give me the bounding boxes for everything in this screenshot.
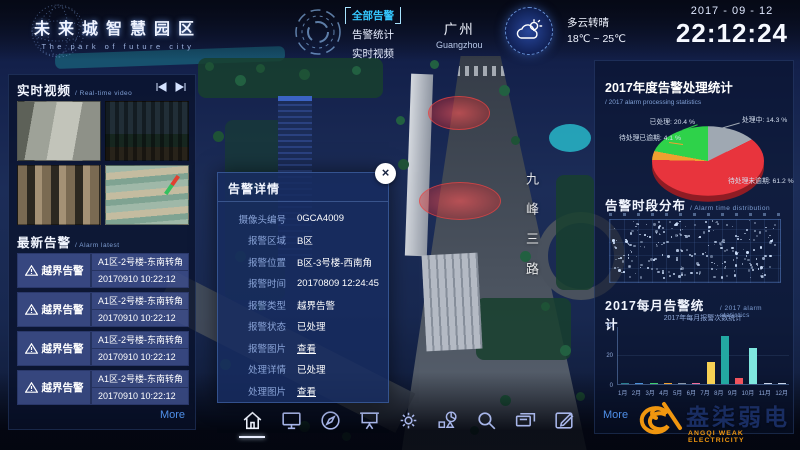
warning-icon xyxy=(25,304,38,315)
app-title-block: 未来城智慧园区 The park of future city xyxy=(34,15,202,51)
angqi-logo-icon xyxy=(630,398,684,446)
edit-pencil-icon[interactable] xyxy=(550,408,578,444)
video-thumbnail-3[interactable] xyxy=(17,165,101,225)
modal-field-type: 报警类型越界告警 xyxy=(218,294,388,316)
alarm-location: A1区-2号楼-东南转角 xyxy=(92,254,188,271)
field-value: 已处理 xyxy=(297,362,326,376)
scatter-section-title: 告警时段分布 xyxy=(605,195,686,214)
city-block: 广州 Guangzhou xyxy=(436,18,483,50)
alarm-section-header: 最新告警 / Alarm latest xyxy=(17,232,120,251)
modal-field-time: 报警时间20170809 12:24:45 xyxy=(218,273,388,295)
field-value: 已处理 xyxy=(297,319,326,333)
warning-icon xyxy=(25,343,38,354)
bar xyxy=(692,383,700,385)
brand-name-cn: 盎柒弱电 xyxy=(686,398,790,432)
alarm-type-cell: 越界告警 xyxy=(18,293,92,326)
modal-field-area: 报警区域B区 xyxy=(218,230,388,252)
alarm-detail-modal: 告警详情 × 摄像头编号0GCA4009 报警区域B区 报警位置B区-3号楼-西… xyxy=(217,172,389,403)
menu-item-all-alarms[interactable]: 全部告警 xyxy=(345,7,401,24)
header: 未来城智慧园区 The park of future city 全部告警 告警统… xyxy=(0,0,800,62)
field-value: 20170809 12:24:45 xyxy=(297,278,379,289)
monthly-bar-yticks: 40200 xyxy=(595,323,613,389)
map-decoration xyxy=(556,175,594,290)
field-label: 处理详情 xyxy=(218,362,286,376)
field-label: 报警区域 xyxy=(218,233,286,247)
video-section-title: 实时视频 xyxy=(17,80,71,99)
stats-more-link[interactable]: More xyxy=(603,409,628,421)
video-nav xyxy=(155,82,187,92)
city-name-en: Guangzhou xyxy=(436,40,483,50)
time-text: 22:12:24 xyxy=(676,18,788,49)
pie-label-pending-not-overdue: 待处理未逾期: 61.2 % xyxy=(728,175,794,185)
bar xyxy=(650,383,658,385)
modal-field-camera-id: 摄像头编号0GCA4009 xyxy=(218,208,388,230)
alarm-time: 20170910 10:22:12 xyxy=(92,349,188,365)
alarm-info-cell: A1区-2号楼-东南转角 20170910 10:22:12 xyxy=(92,332,188,365)
pie-section-title: 2017年度告警处理统计 xyxy=(605,77,733,96)
modal-field-handle-image: 处理图片查看 xyxy=(218,380,388,402)
scatter-section-header: 告警时段分布 / Alarm time distribution xyxy=(605,195,770,214)
pie-leader-line xyxy=(722,123,740,129)
modal-field-handle-detail: 处理详情已处理 xyxy=(218,359,388,381)
alarm-type-cell: 越界告警 xyxy=(18,254,92,287)
video-section-header: 实时视频 / Real-time video xyxy=(17,80,132,99)
bar xyxy=(721,336,729,384)
search-icon[interactable] xyxy=(472,408,500,444)
field-value: B区-3号楼-西南角 xyxy=(297,255,372,269)
warning-icon xyxy=(25,265,38,276)
previous-video-icon[interactable] xyxy=(155,82,167,92)
field-label: 报警状态 xyxy=(218,319,286,333)
pie-section-subtitle: / 2017 alarm processing statistics xyxy=(605,99,701,106)
alarm-type-label: 越界告警 xyxy=(42,302,84,317)
presentation-icon[interactable] xyxy=(355,408,383,444)
alarm-location: A1区-2号楼-东南转角 xyxy=(92,293,188,310)
map-alarm-marker[interactable] xyxy=(419,182,501,220)
datetime-block: 2017 - 09 - 12 22:12:24 xyxy=(676,5,788,49)
alarm-section-subtitle: / Alarm latest xyxy=(75,242,120,249)
map-road-label: 九峰三路 xyxy=(522,172,541,292)
bar xyxy=(678,383,686,385)
date-text: 2017 - 09 - 12 xyxy=(676,5,788,17)
dashboard: 九峰三路 未来城智慧园区 The park of future city 全部告… xyxy=(0,0,800,450)
weather-badge xyxy=(505,7,553,55)
close-icon[interactable]: × xyxy=(375,163,396,184)
records-cards-icon[interactable] xyxy=(511,408,539,444)
statistics-shapes-icon[interactable] xyxy=(433,408,461,444)
alarm-location: A1区-2号楼-东南转角 xyxy=(92,371,188,388)
bar-chart-title: 2017年每月报警次数统计 xyxy=(617,313,789,323)
bar xyxy=(664,383,672,385)
bar-y-tick: 40 xyxy=(606,323,613,329)
scatter-axis-ticks xyxy=(609,213,781,216)
field-value: B区 xyxy=(297,233,313,247)
weather-temp: 18℃ ~ 25℃ xyxy=(567,31,626,47)
alarm-type-cell: 越界告警 xyxy=(18,371,92,404)
map-building xyxy=(405,74,433,257)
view-link[interactable]: 查看 xyxy=(297,384,316,398)
next-video-icon[interactable] xyxy=(175,82,187,92)
menu-item-alarm-stats[interactable]: 告警统计 xyxy=(345,26,401,43)
warning-icon xyxy=(25,382,38,393)
brand-block: 盎柒弱电 ANGQI WEAK ELECTRICITY xyxy=(630,396,796,448)
modal-title: 告警详情 xyxy=(228,180,280,197)
field-label: 处理图片 xyxy=(218,384,286,398)
field-label: 报警时间 xyxy=(218,276,286,290)
modal-fields: 摄像头编号0GCA4009 报警区域B区 报警位置B区-3号楼-西南角 报警时间… xyxy=(218,208,388,402)
modal-field-status: 报警状态已处理 xyxy=(218,316,388,338)
bar-y-tick: 0 xyxy=(610,383,613,389)
video-thumbnail-4[interactable] xyxy=(105,165,189,225)
video-section-subtitle: / Real-time video xyxy=(75,90,132,97)
map-alarm-marker[interactable] xyxy=(428,96,490,130)
bar xyxy=(707,362,715,384)
field-label: 报警位置 xyxy=(218,255,286,269)
compass-icon[interactable] xyxy=(316,408,344,444)
field-label: 报警类型 xyxy=(218,298,286,312)
map-crosswalk xyxy=(456,66,527,76)
pie-section-header: 2017年度告警处理统计 / 2017 alarm processing sta… xyxy=(605,77,733,106)
video-thumbnail-1[interactable] xyxy=(17,101,101,161)
map-decoration xyxy=(476,298,571,360)
weather-text: 多云转晴 18℃ ~ 25℃ xyxy=(567,15,626,47)
sun-cloud-icon xyxy=(513,17,545,45)
alarm-list-item[interactable]: 越界告警 A1区-2号楼-东南转角 20170910 10:22:12 xyxy=(17,253,189,288)
swirl-graphic xyxy=(290,4,346,60)
alarm-time: 20170910 10:22:12 xyxy=(92,310,188,326)
field-label: 报警图片 xyxy=(218,341,286,355)
field-label: 摄像头编号 xyxy=(218,212,286,226)
alarm-type-label: 越界告警 xyxy=(42,341,84,356)
monitor-icon[interactable] xyxy=(277,408,305,444)
video-thumbnail-2[interactable] xyxy=(105,101,189,161)
modal-field-alarm-image: 报警图片查看 xyxy=(218,337,388,359)
alarm-info-cell: A1区-2号楼-东南转角 20170910 10:22:12 xyxy=(92,293,188,326)
bottom-toolbar xyxy=(238,408,578,444)
settings-gear-icon[interactable] xyxy=(394,408,422,444)
bar-y-tick: 20 xyxy=(606,353,613,359)
alarm-list-item[interactable]: 越界告警 A1区-2号楼-东南转角 20170910 10:22:12 xyxy=(17,331,189,366)
alarm-section-title: 最新告警 xyxy=(17,232,71,251)
app-subtitle: The park of future city xyxy=(34,42,202,51)
bar-x-label: 1月 xyxy=(618,388,627,397)
map-pond xyxy=(549,124,591,152)
bar xyxy=(749,348,757,384)
alarm-location: A1区-2号楼-东南转角 xyxy=(92,332,188,349)
alarm-more-link[interactable]: More xyxy=(160,409,185,421)
home-icon[interactable] xyxy=(238,408,266,444)
app-title: 未来城智慧园区 xyxy=(34,15,202,39)
pie-label-processed: 已处理: 20.4 % xyxy=(650,116,695,126)
bar xyxy=(778,383,786,385)
top-menu: 全部告警 告警统计 实时视频 xyxy=(345,7,401,62)
modal-divider xyxy=(218,201,388,202)
alarm-info-cell: A1区-2号楼-东南转角 20170910 10:22:12 xyxy=(92,371,188,404)
field-value: 0GCA4009 xyxy=(297,213,344,224)
bar xyxy=(735,378,743,384)
scatter-section-subtitle: / Alarm time distribution xyxy=(690,205,770,212)
monthly-bar-plot xyxy=(617,327,789,385)
map-decoration xyxy=(198,58,383,98)
alarm-list-item[interactable]: 越界告警 A1区-2号楼-东南转角 20170910 10:22:12 xyxy=(17,370,189,405)
view-link[interactable]: 查看 xyxy=(297,341,316,355)
brand-name-en: ANGQI WEAK ELECTRICITY xyxy=(688,430,796,444)
alarm-type-label: 越界告警 xyxy=(42,380,84,395)
left-panel: 实时视频 / Real-time video 最新告警 / Alarm late… xyxy=(8,74,196,430)
right-panel: 2017年度告警处理统计 / 2017 alarm processing sta… xyxy=(594,60,794,434)
city-name: 广州 xyxy=(436,18,483,38)
alarm-info-cell: A1区-2号楼-东南转角 20170910 10:22:12 xyxy=(92,254,188,287)
menu-item-realtime-video[interactable]: 实时视频 xyxy=(345,45,401,62)
pie-label-pending-overdue: 待处理已逾期: 4.1 % xyxy=(619,132,681,142)
bar xyxy=(621,383,629,385)
alarm-time: 20170910 10:22:12 xyxy=(92,271,188,287)
field-value: 越界告警 xyxy=(297,298,335,312)
modal-field-location: 报警位置B区-3号楼-西南角 xyxy=(218,251,388,273)
alarm-type-label: 越界告警 xyxy=(42,263,84,278)
bar xyxy=(764,383,772,385)
alarm-list-item[interactable]: 越界告警 A1区-2号楼-东南转角 20170910 10:22:12 xyxy=(17,292,189,327)
weather-condition: 多云转晴 xyxy=(567,15,626,31)
alarm-type-cell: 越界告警 xyxy=(18,332,92,365)
bar xyxy=(635,383,643,385)
map-building xyxy=(422,253,483,352)
time-scatter-plot xyxy=(609,219,781,283)
pie-label-processing: 处理中: 14.3 % xyxy=(742,114,787,124)
video-thumbnail-grid xyxy=(17,101,189,225)
alarm-time: 20170910 10:22:12 xyxy=(92,388,188,404)
